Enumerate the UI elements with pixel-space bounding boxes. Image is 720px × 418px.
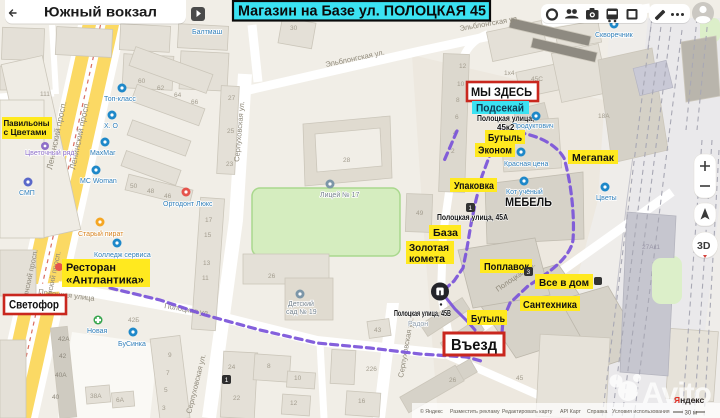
svg-text:111: 111 [40,91,50,98]
svg-text:64: 64 [174,92,182,99]
svg-text:42А: 42А [58,336,70,343]
svg-text:42Б: 42Б [128,317,140,324]
svg-text:Упаковка: Упаковка [454,180,494,192]
svg-text:© Яндекс: © Яндекс [420,408,443,415]
svg-text:3: 3 [527,269,531,276]
svg-text:26: 26 [449,377,457,384]
svg-text:Скворечник: Скворечник [595,32,634,39]
svg-text:2: 2 [451,148,455,155]
svg-text:50: 50 [130,183,138,190]
svg-text:13: 13 [203,260,211,267]
svg-text:23: 23 [226,161,234,168]
svg-text:Южный вокзал: Южный вокзал [44,4,157,20]
svg-text:Поплавок: Поплавок [484,261,530,273]
svg-text:сад № 19: сад № 19 [286,309,317,316]
svg-text:Полоцкая улица, 45В: Полоцкая улица, 45В [394,309,451,318]
svg-text:18А: 18А [598,113,610,120]
svg-text:6А: 6А [116,397,125,404]
svg-text:9: 9 [168,352,172,359]
svg-text:49: 49 [416,210,424,217]
svg-text:11: 11 [202,275,209,282]
svg-text:3: 3 [162,405,166,412]
svg-text:MC Woman: MC Woman [80,178,117,185]
svg-text:Красная цена: Красная цена [504,161,549,168]
svg-text:Бутыль: Бутыль [471,313,505,325]
svg-text:Сантехника: Сантехника [523,299,577,311]
svg-text:Цветы: Цветы [596,195,617,202]
svg-text:Яндекс: Яндекс [674,395,705,405]
svg-text:API Карт: API Карт [560,409,581,415]
svg-text:28: 28 [343,157,351,164]
svg-text:42: 42 [59,353,67,360]
svg-text:48: 48 [147,188,155,195]
svg-text:Колледж сервиса: Колледж сервиса [94,252,151,259]
svg-text:Ортодонт Люкс: Ортодонт Люкс [163,201,213,208]
svg-text:1х4: 1х4 [504,70,515,77]
svg-text:38А: 38А [90,393,102,400]
svg-text:25: 25 [227,128,235,135]
svg-text:Балтмаш: Балтмаш [192,29,222,36]
svg-text:Старый пират: Старый пират [78,230,124,238]
svg-text:с Цветами: с Цветами [4,127,47,137]
svg-text:Лицей № 17: Лицей № 17 [320,191,360,199]
svg-text:30 м: 30 м [685,411,697,417]
svg-text:16: 16 [358,398,366,405]
svg-text:БуСинка: БуСинка [118,341,146,348]
svg-text:Детский: Детский [288,300,314,308]
svg-text:40: 40 [52,394,60,401]
svg-text:3D: 3D [697,240,711,252]
svg-text:Все в дом: Все в дом [539,277,589,289]
svg-text:комета: комета [409,253,445,265]
svg-text:Радон: Радон [408,321,428,328]
svg-text:10: 10 [457,81,465,88]
svg-text:62: 62 [157,85,165,92]
svg-text:Цветочный ряд: Цветочный ряд [25,149,74,157]
svg-text:22: 22 [233,395,241,402]
svg-text:10: 10 [294,375,302,382]
svg-text:«Антлантика»: «Антлантика» [66,275,144,287]
svg-text:Редактировать карту: Редактировать карту [502,409,553,415]
svg-text:43: 43 [374,327,382,334]
svg-text:Въезд: Въезд [451,337,497,354]
svg-text:Х. О: Х. О [104,123,119,130]
svg-text:Ресторан: Ресторан [66,262,116,274]
svg-text:МахМаг: МахМаг [90,150,116,157]
svg-text:Полоцкая улица, 45А: Полоцкая улица, 45А [437,213,508,222]
svg-text:45: 45 [516,375,524,382]
svg-text:МЫ ЗДЕСЬ: МЫ ЗДЕСЬ [471,85,532,99]
svg-text:17: 17 [205,217,213,224]
svg-text:Бутыль: Бутыль [488,132,522,144]
svg-text:Продуктович: Продуктович [512,123,554,130]
svg-text:База: База [433,227,458,239]
svg-text:27Ак1: 27Ак1 [642,244,660,251]
svg-text:8: 8 [267,363,271,370]
svg-text:226: 226 [366,366,377,373]
svg-text:27: 27 [228,95,236,102]
svg-text:МЕБЕЛЬ: МЕБЕЛЬ [505,195,552,209]
svg-text:12: 12 [290,400,298,407]
svg-text:8: 8 [456,97,460,104]
svg-text:30: 30 [290,25,298,32]
svg-text:Новая: Новая [87,328,107,335]
svg-text:Магазин на Базе ул. ПОЛОЦКАЯ 4: Магазин на Базе ул. ПОЛОЦКАЯ 45 [238,4,486,20]
svg-text:6: 6 [455,114,459,121]
svg-text:1: 1 [469,205,473,212]
svg-text:СМП: СМП [19,190,35,197]
svg-text:26: 26 [268,273,276,280]
svg-text:5: 5 [164,387,168,394]
svg-text:12: 12 [459,63,467,70]
svg-text:24: 24 [228,364,236,371]
svg-text:46: 46 [164,193,172,200]
svg-text:Топ-класс: Топ-класс [104,96,136,103]
svg-text:Разместить рекламу: Разместить рекламу [450,409,500,415]
svg-text:Условия использования: Условия использования [612,409,670,415]
svg-text:1: 1 [225,377,229,384]
svg-text:Мегапак: Мегапак [572,152,615,164]
svg-text:Эконом: Эконом [478,145,512,157]
svg-text:15: 15 [204,232,212,239]
svg-text:Полоцкая улица,: Полоцкая улица, [477,114,534,123]
svg-text:40А: 40А [55,372,67,379]
svg-text:7: 7 [166,370,170,377]
svg-text:66: 66 [191,99,199,106]
svg-text:60: 60 [138,78,146,85]
svg-text:Справка: Справка [587,409,607,415]
svg-text:Подсекай: Подсекай [476,103,524,115]
svg-text:Светофор: Светофор [9,300,59,312]
